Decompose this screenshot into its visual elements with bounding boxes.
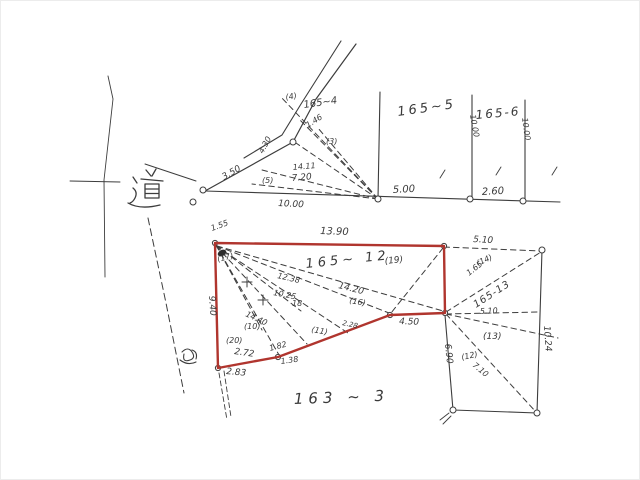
parcel-label-165-12: 165~ 12 xyxy=(305,248,390,272)
base-boundary-line xyxy=(205,191,560,202)
kanji-stroke xyxy=(141,179,163,181)
survey-point xyxy=(290,139,296,145)
point-number-label: (16) xyxy=(349,296,367,308)
tie-c-northeast xyxy=(446,252,541,312)
dim-base-10: 10.00 xyxy=(278,199,305,210)
kanji-stroke xyxy=(146,169,156,176)
corner-hatch-marks xyxy=(440,413,451,424)
dim-10-24: 10.24 xyxy=(541,326,553,353)
dim-7-10: 7.10 xyxy=(471,361,490,379)
kanji-stroke xyxy=(128,177,160,207)
tie-b-east xyxy=(444,247,541,251)
parcel-label-165-6: 165-6 xyxy=(475,104,521,122)
road-left-edge-lower xyxy=(148,218,184,393)
dim-3-50: 3.50 xyxy=(221,164,244,183)
survey-point xyxy=(375,196,381,202)
survey-point xyxy=(539,247,545,253)
road-kanji-glyph xyxy=(128,169,163,207)
survey-point xyxy=(520,198,526,204)
point-number-label: (10) xyxy=(244,322,260,331)
kanji-stroke xyxy=(145,184,159,198)
dim-5-10-mid: 5.10 xyxy=(480,306,498,316)
parcel-165-13-bottom-edge xyxy=(453,410,537,413)
dim-vertical-right: 10.00 xyxy=(520,117,532,141)
point-number-label: (11) xyxy=(311,325,329,337)
parcel-label-165-4: 165~4 xyxy=(303,95,338,111)
upper-left-boundary xyxy=(145,164,196,181)
dim-2-28: 2.28 xyxy=(342,319,359,330)
dim-red-left-9-40: 9.40 xyxy=(206,296,217,317)
survey-point xyxy=(467,196,473,202)
dim-1-38: 1.38 xyxy=(280,355,299,366)
dim-18: 18 xyxy=(292,299,302,308)
parcel-divider-left xyxy=(378,92,380,199)
left-tick-mark xyxy=(70,181,120,182)
survey-point xyxy=(200,187,206,193)
dim-7-20: 7.20 xyxy=(291,172,312,184)
dim-5-10-top: 5.10 xyxy=(473,235,494,246)
dim-base-5: 5.00 xyxy=(393,184,416,196)
point-number-label: (4) xyxy=(285,91,298,102)
tie-fan-2 xyxy=(298,118,378,199)
survey-point xyxy=(190,199,196,205)
cross-marks xyxy=(242,277,268,305)
survey-point xyxy=(534,410,540,416)
road-right-edge-lower xyxy=(219,371,231,420)
left-boundary-line xyxy=(104,76,113,277)
dim-4-50: 4.50 xyxy=(399,317,420,328)
scribble-symbol xyxy=(180,349,197,364)
dim-14-11: 14.11 xyxy=(292,161,316,172)
scanned-cadastral-map: (4) 165~4 165~5 165-6 10.00 10.00 5.00 2… xyxy=(0,0,640,480)
dim-1-55: 1.55 xyxy=(210,218,230,233)
point-number-label: (19) xyxy=(384,255,403,267)
parcel-165-13-right-edge xyxy=(537,250,542,413)
dim-2-83: 2.83 xyxy=(226,367,247,379)
parcel-label-163-3: 163 ~ 3 xyxy=(294,387,390,408)
point-number-label: (20) xyxy=(226,336,242,345)
dim-12-38: 12.38 xyxy=(277,271,301,285)
point-number-label: (13) xyxy=(483,332,501,342)
survey-point xyxy=(450,407,456,413)
point-number-label: (5) xyxy=(262,176,273,185)
parcel-tick-marks xyxy=(440,167,557,178)
parcel-label-165-5: 165~5 xyxy=(396,97,456,120)
dim-4-30: 4.30 xyxy=(257,135,273,155)
dim-6-90: 6.90 xyxy=(442,343,454,364)
tie-c-southeast xyxy=(446,314,536,412)
dim-1-82: 1.82 xyxy=(268,340,288,353)
dim-2-72: 2.72 xyxy=(234,347,256,360)
survey-drawing: (4) 165~4 165~5 165-6 10.00 10.00 5.00 2… xyxy=(0,0,640,480)
point-number-label: (3) xyxy=(326,137,337,146)
dim-base-2-60: 2.60 xyxy=(482,186,505,198)
dim-red-top-13-90: 13.90 xyxy=(320,226,349,238)
